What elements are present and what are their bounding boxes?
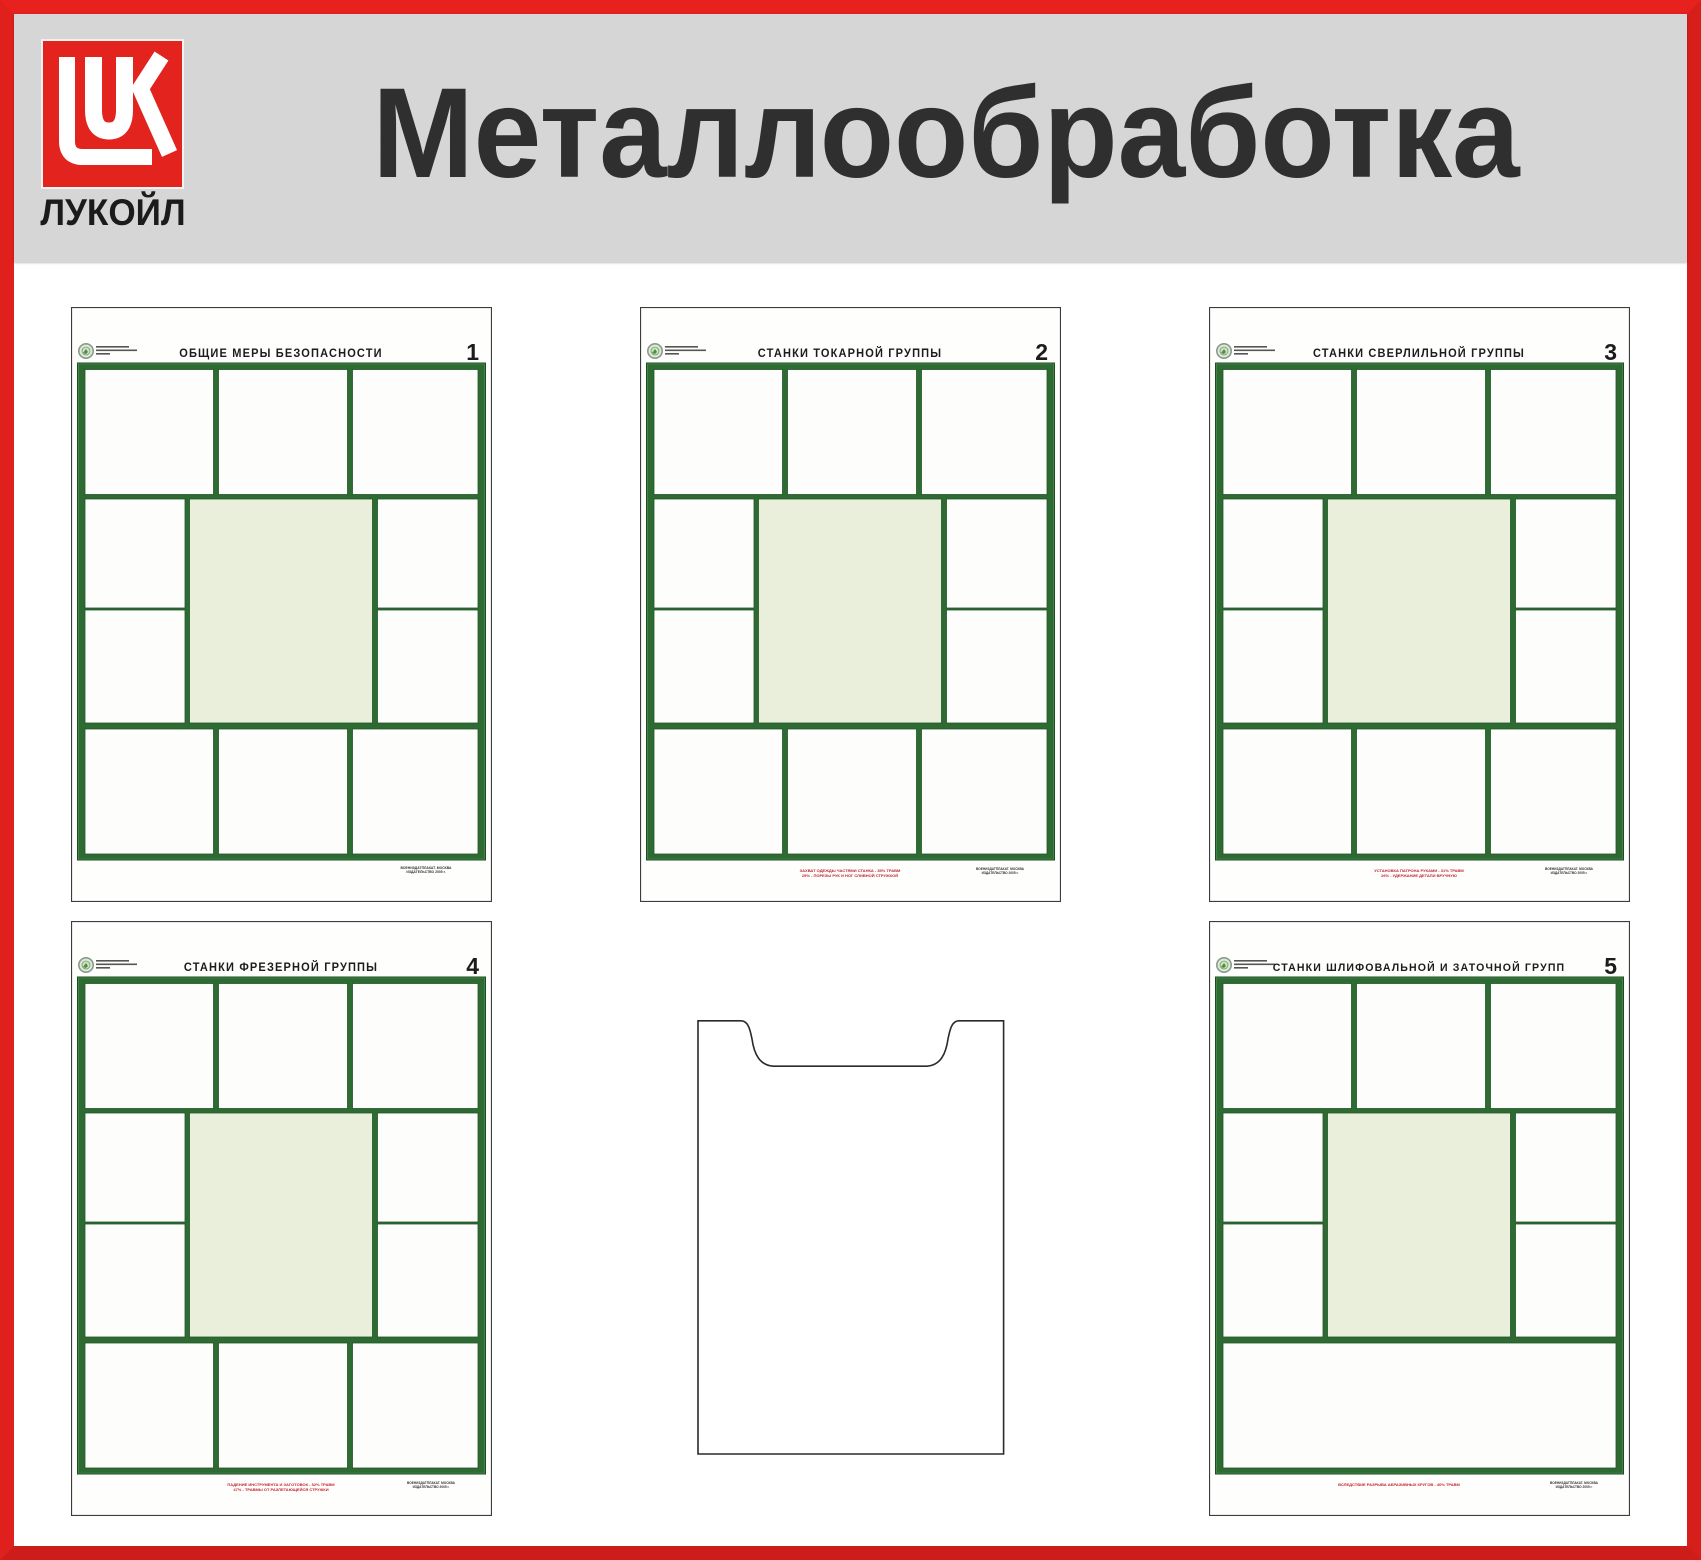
- svg-text:2: 2: [1035, 339, 1048, 365]
- svg-text:1: 1: [466, 339, 479, 365]
- svg-text:3: 3: [1604, 339, 1617, 365]
- svg-text:25% - ПОРЕЗЫ РУК И НОГ СЛИВНОЙ: 25% - ПОРЕЗЫ РУК И НОГ СЛИВНОЙ СТРУЖКОЙ: [802, 873, 898, 878]
- svg-text:ИЗДАТЕЛЬСТВО 2005 г.: ИЗДАТЕЛЬСТВО 2005 г.: [406, 870, 445, 874]
- svg-text:ОБЩИЕ МЕРЫ БЕЗОПАСНОСТИ: ОБЩИЕ МЕРЫ БЕЗОПАСНОСТИ: [179, 348, 383, 360]
- svg-text:4: 4: [466, 953, 479, 979]
- svg-text:ЛУКОЙЛ: ЛУКОЙЛ: [40, 190, 185, 233]
- svg-text:СТАНКИ ТОКАРНОЙ ГРУППЫ: СТАНКИ ТОКАРНОЙ ГРУППЫ: [758, 347, 942, 360]
- svg-text:47% - ТРАВМЫ ОТ РАЗЛЕТАЮЩЕЙСЯ: 47% - ТРАВМЫ ОТ РАЗЛЕТАЮЩЕЙСЯ СТРУЖКИ: [233, 1487, 328, 1492]
- svg-text:СТАНКИ ФРЕЗЕРНОЙ ГРУППЫ: СТАНКИ ФРЕЗЕРНОЙ ГРУППЫ: [184, 961, 378, 974]
- svg-text:ИЗДАТЕЛЬСТВО 2005 г.: ИЗДАТЕЛЬСТВО 2005 г.: [413, 1485, 450, 1489]
- svg-text:26% - УДЕРЖАНИЕ ДЕТАЛИ ВРУЧНУЮ: 26% - УДЕРЖАНИЕ ДЕТАЛИ ВРУЧНУЮ: [1381, 873, 1457, 878]
- svg-text:5: 5: [1604, 953, 1617, 979]
- svg-text:СТАНКИ ШЛИФОВАЛЬНОЙ И ЗАТО: СТАНКИ ШЛИФОВАЛЬНОЙ И ЗАТОЧНОЙ ГРУПП: [1273, 961, 1566, 974]
- svg-text:СТАНКИ СВЕРЛИЛЬНОЙ ГРУППЫ: СТАНКИ СВЕРЛИЛЬНОЙ ГРУППЫ: [1313, 347, 1525, 360]
- svg-text:ИЗДАТЕЛЬСТВО 2005 г.: ИЗДАТЕЛЬСТВО 2005 г.: [1551, 871, 1588, 875]
- svg-text:ИЗДАТЕЛЬСТВО 2005 г.: ИЗДАТЕЛЬСТВО 2005 г.: [1556, 1485, 1593, 1489]
- svg-text:ИЗДАТЕЛЬСТВО 2005 г.: ИЗДАТЕЛЬСТВО 2005 г.: [982, 871, 1019, 875]
- svg-text:ВСЛЕДСТВИЕ РАЗРЫВА АБРАЗИВНЫХ: ВСЛЕДСТВИЕ РАЗРЫВА АБРАЗИВНЫХ КРУГОВ - 4…: [1338, 1482, 1460, 1487]
